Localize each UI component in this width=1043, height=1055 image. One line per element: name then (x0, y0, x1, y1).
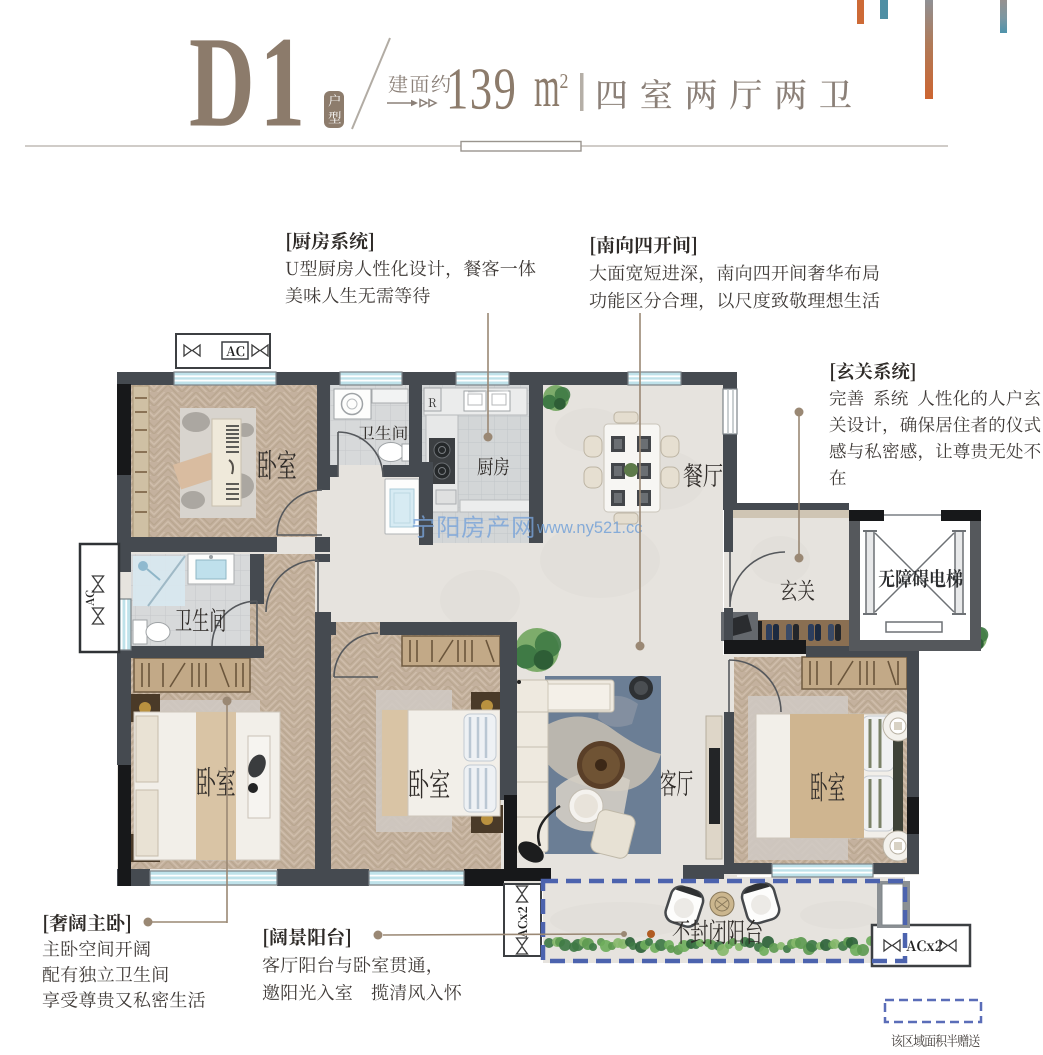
svg-text:www.ny521.cc: www.ny521.cc (536, 519, 642, 537)
